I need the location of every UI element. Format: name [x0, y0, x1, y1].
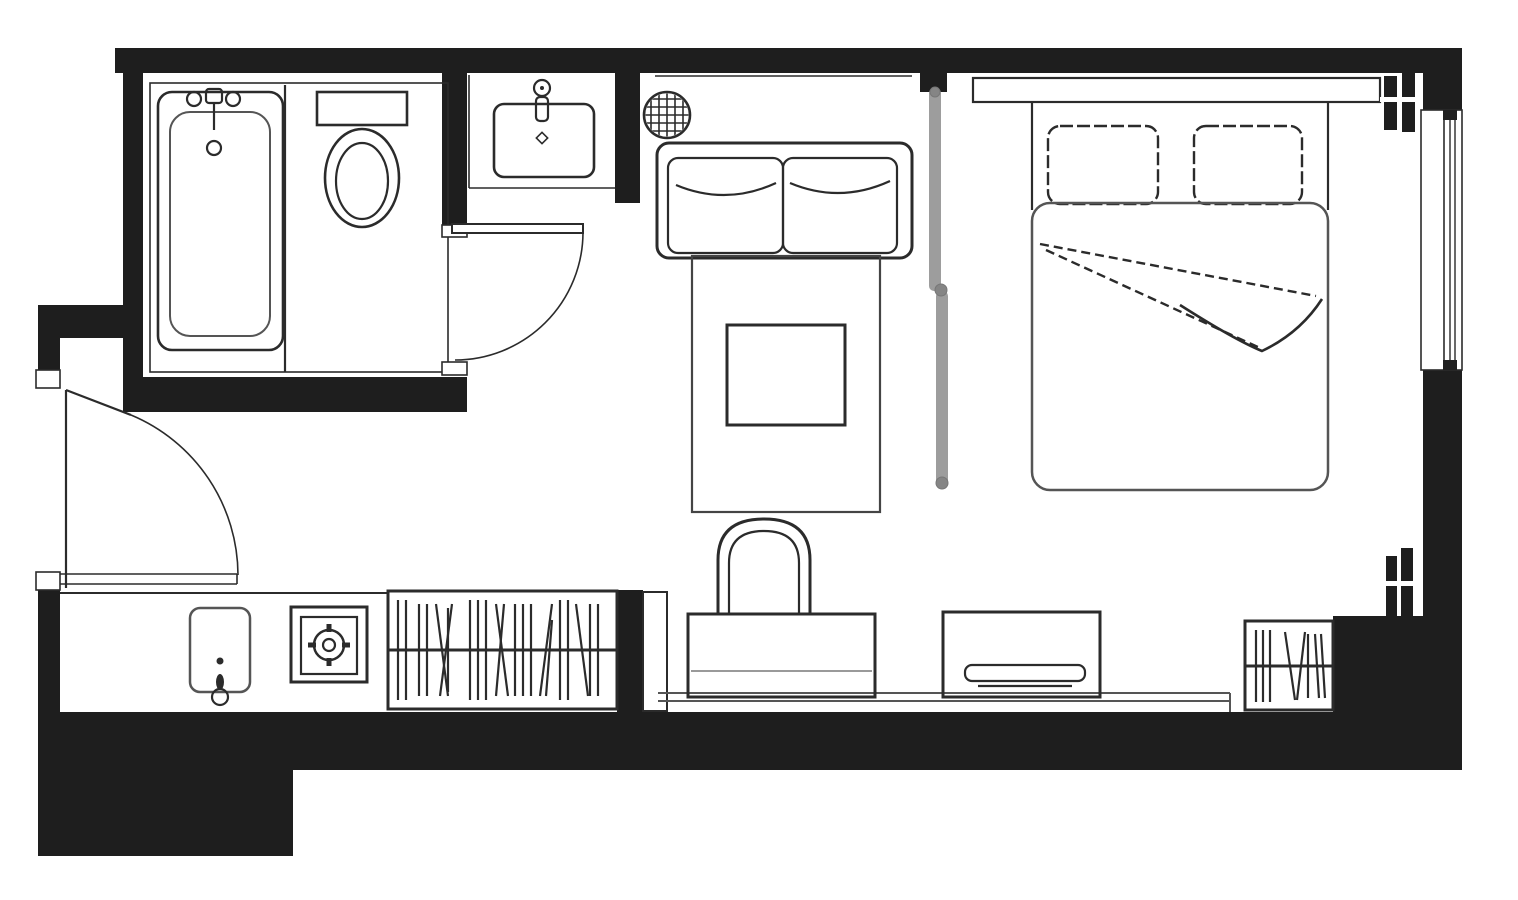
wardrobe-hanging-rail-icon — [388, 591, 617, 709]
tub-chair-icon — [718, 519, 810, 613]
wall-bottom-right-mass — [1333, 616, 1462, 712]
kitchen-sink-icon — [190, 608, 250, 705]
wall-toilet-east — [442, 48, 467, 225]
sofa-cushion-right — [783, 158, 897, 253]
floor-plan-page — [0, 0, 1518, 900]
pillow-icon — [1048, 126, 1158, 204]
duvet — [1032, 203, 1328, 490]
bathroom-inner-outline — [150, 83, 448, 372]
wall-break-icon — [1382, 548, 1418, 616]
wall-break-icon — [1380, 72, 1420, 132]
double-bed-icon — [973, 78, 1380, 490]
rug-icon — [692, 256, 880, 512]
sliding-door-icon — [929, 87, 948, 489]
wall-top — [115, 48, 1462, 73]
wall-stub-wardrobe — [617, 590, 643, 712]
wall-basin-east — [615, 48, 640, 203]
bathroom-door-swing-icon — [452, 224, 583, 360]
sofa-cushion-left — [668, 158, 783, 253]
bath-door-bottom-sill — [442, 362, 467, 375]
desk-icon — [688, 614, 875, 697]
entry-door-bottom-sill — [36, 572, 60, 590]
tub-tap-left — [187, 92, 201, 106]
extractor-fan-icon — [644, 92, 690, 138]
window-icon — [1421, 110, 1462, 370]
toilet-tank — [317, 92, 407, 125]
coffee-table-icon — [727, 325, 845, 425]
wall-bottom-band — [38, 712, 1462, 770]
tub-tap-right — [226, 92, 240, 106]
wall-left-upper — [38, 305, 60, 372]
toilet-icon — [317, 92, 407, 227]
tv-console-icon — [943, 612, 1100, 697]
sofa-icon — [657, 143, 912, 258]
washbasin-icon — [494, 80, 594, 177]
wall-bathroom-west — [123, 48, 143, 412]
stove-burner-icon — [291, 607, 367, 682]
floor-plan-canvas — [0, 0, 1518, 900]
bathtub-icon — [158, 89, 283, 350]
blanket-fold — [1040, 244, 1322, 351]
entry-door-top-sill — [36, 370, 60, 388]
closet-hanging-rail-icon — [1245, 621, 1333, 710]
wall-right-top — [1423, 48, 1462, 112]
wall-bottom-left-block — [38, 770, 293, 856]
flat-tv-icon — [965, 665, 1085, 681]
wall-bathroom-south — [123, 377, 467, 412]
headboard — [973, 78, 1380, 102]
pillow-icon — [1194, 126, 1302, 204]
tub-drain — [207, 141, 221, 155]
entry-door-swing-icon — [60, 390, 238, 588]
basin-drain — [536, 132, 547, 143]
